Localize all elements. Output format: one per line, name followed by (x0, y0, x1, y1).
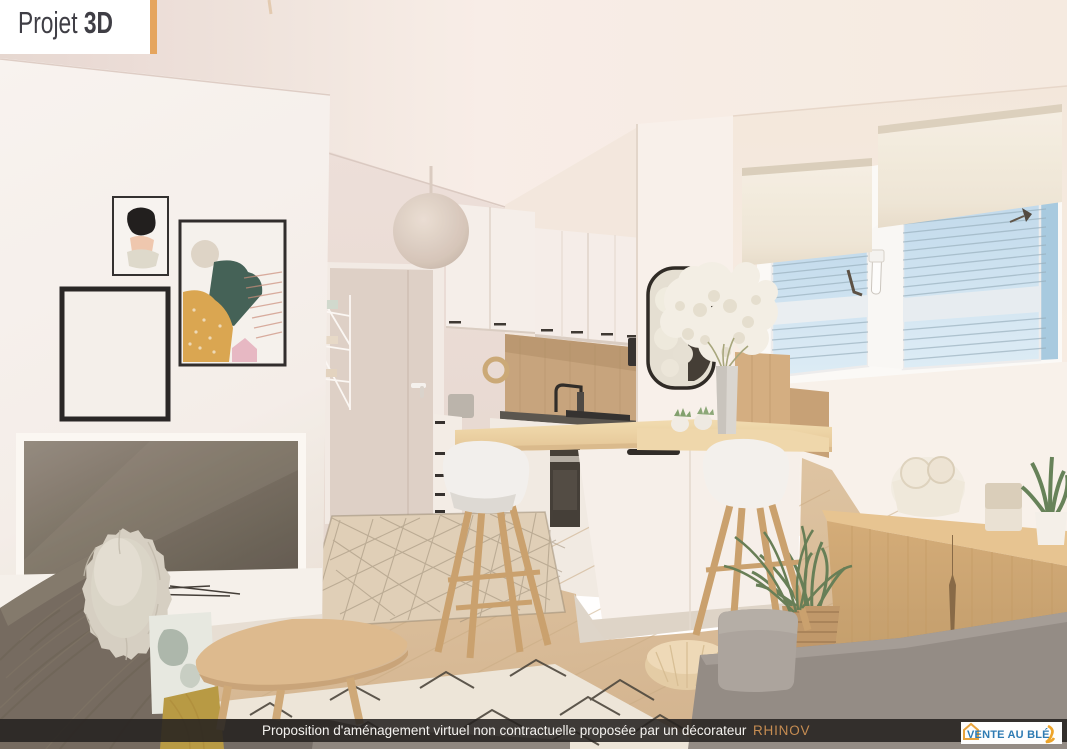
svg-text:Proposition d'aménagement virt: Proposition d'aménagement virtuel non co… (262, 723, 747, 738)
svg-text:RHINOV: RHINOV (753, 723, 810, 738)
svg-text:Projet 3D: Projet 3D (18, 5, 113, 40)
svg-text:VENTE AU BLÉ: VENTE AU BLÉ (967, 728, 1050, 741)
